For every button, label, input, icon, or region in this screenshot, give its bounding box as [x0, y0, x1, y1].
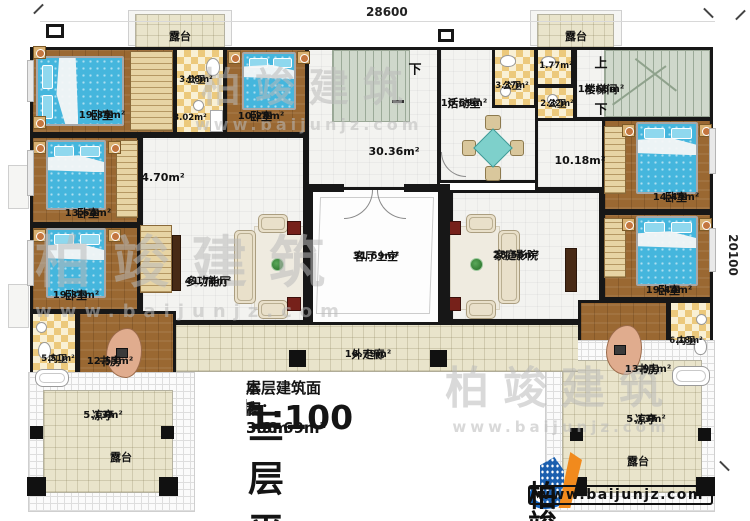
bed-sheet: [638, 138, 696, 156]
bath-counter: [210, 110, 223, 132]
window-right-1: [709, 128, 716, 174]
sink: [36, 322, 47, 333]
room-area: 31.69m²: [353, 251, 399, 262]
bed-bedroom-l3: [46, 228, 106, 298]
room-name: 露台: [169, 31, 191, 43]
chimney-left: [46, 24, 64, 38]
pillow: [54, 234, 74, 245]
floor-plan: 28600 20100: [0, 0, 750, 521]
room-name: 露台: [110, 452, 132, 464]
nightstand: [622, 218, 635, 231]
pillow: [80, 234, 100, 245]
stairs-down-label-right: 下: [594, 99, 607, 118]
left-ledge-2: [8, 284, 29, 328]
void-wall-right: [438, 188, 450, 322]
room-area: 30.36m²: [368, 146, 419, 158]
room-area: 15.68m²: [578, 84, 624, 95]
bathroom-top-right-1-floor: [492, 47, 537, 108]
terrace-left-pillar-2: [159, 477, 178, 496]
armchair: [466, 300, 496, 319]
floor-height-text: 层高：3.3m: [246, 377, 288, 437]
chimney-center: [438, 29, 454, 42]
top-dimension-line: [40, 21, 715, 22]
room-area: 5.13m²: [83, 410, 122, 421]
room-area: 10.18m²: [554, 155, 605, 167]
armchair: [258, 214, 288, 233]
top-dimension-label: 28600: [360, 5, 414, 19]
sink: [696, 314, 707, 325]
window-left-1: [27, 60, 34, 102]
side-table: [287, 297, 301, 311]
toilet: [500, 55, 516, 67]
pavilion-right-pillar-1: [570, 428, 583, 441]
bed-sheet: [48, 243, 104, 260]
bathtub-right: [672, 366, 710, 386]
sofa-multi-hall: [234, 230, 256, 304]
pillow: [644, 128, 665, 139]
room-area: 3.08m²: [179, 76, 213, 86]
chair: [485, 166, 501, 181]
bed-sheet: [48, 155, 104, 172]
pillow: [54, 146, 74, 157]
room-area: 16.79m²: [345, 349, 391, 360]
right-dimension-label: 20100: [726, 234, 740, 276]
room-area: 16.69m²: [441, 98, 487, 109]
room-area: 19.31m²: [53, 290, 99, 301]
hall-wall-stub-right: [404, 184, 450, 192]
hall-wall-stub-left: [306, 184, 344, 192]
nightstand: [108, 141, 121, 154]
bed-bedroom-ml: [46, 140, 106, 210]
void-wall-left: [303, 188, 313, 322]
tv-cabinet-theater: [565, 248, 577, 292]
nightstand: [228, 51, 241, 64]
side-table: [287, 221, 301, 235]
pillow: [644, 222, 665, 233]
bed-bedroom-tc: [242, 52, 296, 110]
nightstand: [33, 229, 46, 242]
pavilion-left-pillar-1: [30, 426, 43, 439]
room-area: 28.56m²: [493, 250, 539, 261]
monitor: [614, 345, 626, 355]
room-area: 13.91m²: [625, 364, 671, 375]
room-area: 14.45m²: [653, 192, 699, 203]
nightstand: [297, 51, 310, 64]
room-area: 6.18m²: [669, 337, 703, 347]
pillow: [671, 128, 692, 139]
wardrobe-bedroom-l3: [140, 225, 172, 293]
nightstand: [33, 116, 46, 129]
bed-bedroom-r1: [636, 122, 698, 194]
sink: [193, 100, 204, 111]
corridor-pillar-1: [289, 350, 306, 367]
pillow: [671, 222, 692, 233]
stairs-top-left: [332, 50, 410, 122]
bathtub-left: [35, 369, 69, 387]
plant: [271, 258, 284, 271]
room-area: 3.02m²: [173, 114, 207, 124]
room-area: 3.37m²: [495, 82, 529, 92]
pavilion-right-pillar-2: [698, 428, 711, 441]
room-area: 13.64m²: [65, 208, 111, 219]
bed-bedroom-r2: [636, 216, 698, 286]
bed-sheet: [56, 58, 78, 124]
brand-logo-block: 柏竣建筑 www.baijunjz.com: [528, 449, 743, 515]
room-area: 41.78m²: [185, 276, 231, 287]
room-area: 19.44m²: [646, 285, 692, 296]
sofa-theater: [498, 230, 520, 304]
corridor-pillar-2: [430, 350, 447, 367]
corner-tick-top-left: [33, 4, 44, 15]
room-area: 10.28m²: [238, 111, 284, 122]
outer-corridor-floor: [176, 322, 578, 372]
nightstand: [622, 124, 635, 137]
corner-tick-top-right-2: [735, 10, 746, 21]
plant: [470, 258, 483, 271]
stairs-down-label-left: 下: [408, 59, 421, 78]
armchair: [466, 214, 496, 233]
nightstand: [33, 46, 46, 59]
stairs-left-rail-mark: [392, 100, 404, 103]
nightstand: [33, 141, 46, 154]
room-area: 12.53m²: [87, 356, 133, 367]
corner-tick-top-right-1: [703, 8, 714, 19]
room-name: 露台: [565, 31, 587, 43]
room-area: 2.32m²: [540, 100, 574, 110]
room-area: 5.13m²: [626, 414, 665, 425]
room-area: 19.35m²: [79, 110, 125, 121]
wardrobe-bedroom-tl: [130, 51, 173, 131]
window-left-3: [27, 240, 34, 286]
window-left-2: [27, 150, 34, 196]
left-ledge-1: [8, 165, 29, 209]
room-area: 1.77m²: [539, 62, 573, 72]
nightstand: [108, 229, 121, 242]
armchair: [258, 300, 288, 319]
bed-sheet: [638, 231, 696, 248]
toilet: [206, 58, 220, 76]
terrace-left-pillar-1: [27, 477, 46, 496]
window-right-2: [709, 228, 716, 272]
tv-cabinet-multi-hall: [172, 235, 181, 291]
room-area: 4.70m²: [141, 172, 184, 184]
room-area: 5.51m²: [41, 355, 75, 365]
stairs-up-label-right: 上: [594, 53, 607, 72]
pillow: [42, 65, 53, 89]
brand-website: www.baijunjz.com: [528, 485, 713, 505]
pavilion-left-pillar-2: [161, 426, 174, 439]
pillow: [80, 146, 100, 157]
terrace-bottom-left-floor: [43, 390, 173, 493]
